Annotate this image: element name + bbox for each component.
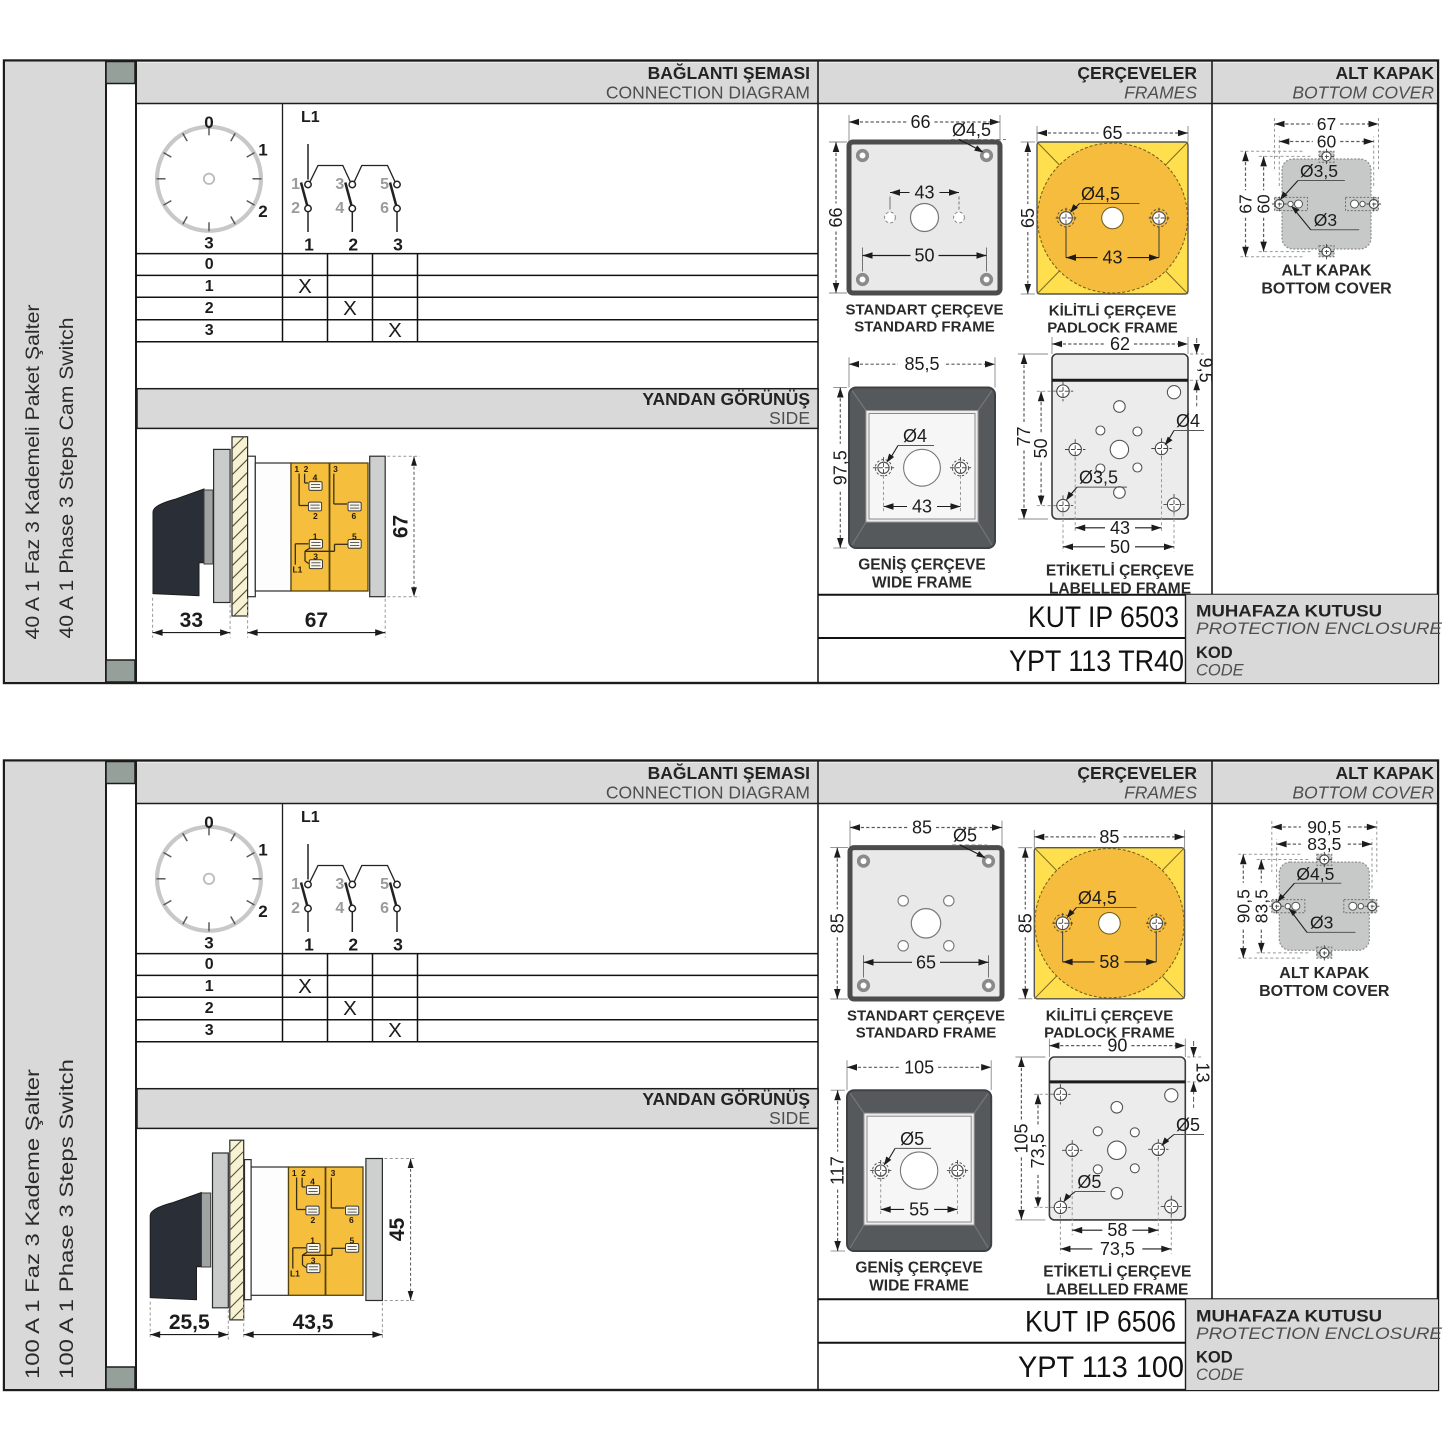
svg-text:SIDE: SIDE xyxy=(769,1108,810,1128)
svg-text:4: 4 xyxy=(335,200,344,217)
svg-text:2: 2 xyxy=(301,1168,306,1178)
svg-text:3: 3 xyxy=(313,552,318,562)
svg-text:85: 85 xyxy=(1015,913,1035,933)
svg-text:62: 62 xyxy=(1110,334,1130,354)
svg-text:40 A 1 Phase 3 Steps Cam Switc: 40 A 1 Phase 3 Steps Cam Switch xyxy=(56,318,78,639)
svg-text:13: 13 xyxy=(1193,1062,1213,1082)
svg-text:3: 3 xyxy=(335,876,344,893)
svg-text:85,5: 85,5 xyxy=(904,354,939,374)
svg-text:KOD: KOD xyxy=(1196,1349,1233,1367)
svg-text:1: 1 xyxy=(313,531,318,541)
svg-text:KİLİTLİ ÇERÇEVE: KİLİTLİ ÇERÇEVE xyxy=(1049,303,1177,320)
svg-text:2: 2 xyxy=(348,935,358,955)
svg-text:KUT IP 6506: KUT IP 6506 xyxy=(1025,1306,1176,1339)
svg-text:CODE: CODE xyxy=(1196,1366,1245,1384)
svg-text:Ø4: Ø4 xyxy=(903,426,927,446)
svg-text:3: 3 xyxy=(204,233,213,252)
svg-text:40 A 1 Faz 3 Kademeli Paket Şa: 40 A 1 Faz 3 Kademeli Paket Şalter xyxy=(22,304,44,640)
svg-text:67: 67 xyxy=(305,609,328,632)
svg-text:33: 33 xyxy=(180,609,203,632)
svg-text:105: 105 xyxy=(904,1057,934,1077)
svg-text:ALT KAPAK: ALT KAPAK xyxy=(1335,763,1434,783)
svg-text:90,5: 90,5 xyxy=(1233,889,1253,923)
svg-text:ETİKETLİ ÇERÇEVE: ETİKETLİ ÇERÇEVE xyxy=(1046,563,1194,580)
svg-text:STANDART ÇERÇEVE: STANDART ÇERÇEVE xyxy=(847,1008,1005,1025)
svg-text:X: X xyxy=(388,1019,402,1042)
svg-text:66: 66 xyxy=(826,207,846,227)
svg-text:4: 4 xyxy=(310,1177,315,1187)
svg-text:L1: L1 xyxy=(301,809,320,826)
svg-text:STANDART ÇERÇEVE: STANDART ÇERÇEVE xyxy=(845,302,1003,319)
svg-text:2: 2 xyxy=(291,200,300,217)
svg-text:4: 4 xyxy=(313,473,318,483)
svg-text:Ø3,5: Ø3,5 xyxy=(1300,161,1338,181)
svg-text:6: 6 xyxy=(380,900,389,917)
svg-text:1: 1 xyxy=(310,1235,315,1245)
svg-text:5: 5 xyxy=(350,1235,355,1245)
svg-text:BOTTOM COVER: BOTTOM COVER xyxy=(1292,83,1434,103)
svg-text:GENİŞ ÇERÇEVE: GENİŞ ÇERÇEVE xyxy=(855,1260,982,1277)
svg-text:43: 43 xyxy=(1110,518,1130,538)
svg-text:3: 3 xyxy=(205,1022,214,1039)
svg-text:73,5: 73,5 xyxy=(1100,1239,1135,1259)
svg-text:45: 45 xyxy=(386,1218,409,1242)
svg-text:X: X xyxy=(343,297,357,320)
svg-text:85: 85 xyxy=(827,913,847,933)
svg-text:85: 85 xyxy=(912,818,932,838)
svg-text:2: 2 xyxy=(291,900,300,917)
svg-text:FRAMES: FRAMES xyxy=(1124,783,1197,803)
svg-text:L1: L1 xyxy=(290,1269,300,1279)
svg-text:2: 2 xyxy=(258,202,267,221)
svg-text:Ø4,5: Ø4,5 xyxy=(1078,888,1117,908)
svg-text:43: 43 xyxy=(914,183,934,203)
svg-text:STANDARD FRAME: STANDARD FRAME xyxy=(856,1025,997,1042)
svg-text:1: 1 xyxy=(291,876,300,893)
svg-text:2: 2 xyxy=(304,464,309,474)
svg-text:58: 58 xyxy=(1099,952,1119,972)
svg-text:SIDE: SIDE xyxy=(769,408,810,428)
svg-text:ALT KAPAK: ALT KAPAK xyxy=(1281,263,1372,280)
svg-text:2: 2 xyxy=(313,511,318,521)
svg-text:3: 3 xyxy=(204,933,213,952)
svg-text:1: 1 xyxy=(294,464,299,474)
svg-text:Ø5: Ø5 xyxy=(900,1129,924,1149)
svg-text:55: 55 xyxy=(909,1199,929,1219)
svg-text:BAĞLANTI ŞEMASI: BAĞLANTI ŞEMASI xyxy=(648,62,810,83)
svg-text:5: 5 xyxy=(380,876,389,893)
svg-text:3: 3 xyxy=(335,176,344,193)
svg-text:1: 1 xyxy=(291,176,300,193)
svg-text:ALT KAPAK: ALT KAPAK xyxy=(1335,63,1434,83)
svg-text:2: 2 xyxy=(205,1000,214,1017)
svg-text:KOD: KOD xyxy=(1196,644,1233,662)
svg-text:Ø4: Ø4 xyxy=(1176,411,1200,431)
svg-text:YANDAN GÖRÜNÜŞ: YANDAN GÖRÜNÜŞ xyxy=(642,389,810,409)
svg-text:0: 0 xyxy=(205,956,214,973)
svg-text:1: 1 xyxy=(258,840,267,859)
svg-text:43: 43 xyxy=(1102,248,1122,268)
svg-text:CONNECTION DIAGRAM: CONNECTION DIAGRAM xyxy=(606,83,810,103)
svg-text:3: 3 xyxy=(393,235,403,255)
svg-text:25,5: 25,5 xyxy=(169,1311,210,1334)
svg-text:83,5: 83,5 xyxy=(1307,834,1341,854)
svg-text:X: X xyxy=(343,997,357,1020)
svg-text:60: 60 xyxy=(1254,194,1274,214)
svg-text:3: 3 xyxy=(311,1256,316,1266)
svg-text:MUHAFAZA KUTUSU: MUHAFAZA KUTUSU xyxy=(1196,603,1382,621)
svg-text:50: 50 xyxy=(914,246,934,266)
svg-text:PROTECTION ENCLOSURE: PROTECTION ENCLOSURE xyxy=(1196,620,1443,638)
svg-text:100 A 1 Faz 3 Kademe Şalter: 100 A 1 Faz 3 Kademe Şalter xyxy=(22,1068,44,1379)
svg-text:BOTTOM COVER: BOTTOM COVER xyxy=(1292,783,1434,803)
svg-text:CONNECTION DIAGRAM: CONNECTION DIAGRAM xyxy=(606,783,810,803)
svg-text:ÇERÇEVELER: ÇERÇEVELER xyxy=(1077,763,1197,783)
svg-text:WIDE FRAME: WIDE FRAME xyxy=(869,1278,969,1295)
svg-text:YANDAN GÖRÜNÜŞ: YANDAN GÖRÜNÜŞ xyxy=(642,1089,810,1109)
svg-text:KUT IP 6503: KUT IP 6503 xyxy=(1028,601,1179,634)
svg-text:Ø4,5: Ø4,5 xyxy=(1296,864,1334,884)
svg-text:90: 90 xyxy=(1107,1036,1127,1056)
svg-text:MUHAFAZA KUTUSU: MUHAFAZA KUTUSU xyxy=(1196,1307,1382,1325)
svg-text:GENİŞ ÇERÇEVE: GENİŞ ÇERÇEVE xyxy=(858,557,985,574)
svg-text:1: 1 xyxy=(205,978,214,995)
svg-text:L1: L1 xyxy=(292,565,302,575)
svg-text:0: 0 xyxy=(205,256,214,273)
svg-text:65: 65 xyxy=(1018,208,1038,228)
svg-text:73,5: 73,5 xyxy=(1028,1133,1048,1168)
svg-text:CODE: CODE xyxy=(1196,662,1245,680)
svg-text:2: 2 xyxy=(348,235,358,255)
svg-text:PROTECTION ENCLOSURE: PROTECTION ENCLOSURE xyxy=(1196,1325,1443,1343)
svg-text:YPT 113 TR40: YPT 113 TR40 xyxy=(1009,645,1184,678)
svg-text:67: 67 xyxy=(390,515,413,538)
svg-text:1: 1 xyxy=(292,1168,297,1178)
svg-text:BOTTOM COVER: BOTTOM COVER xyxy=(1261,281,1392,298)
svg-text:X: X xyxy=(298,275,312,298)
svg-text:2: 2 xyxy=(205,300,214,317)
svg-text:WIDE FRAME: WIDE FRAME xyxy=(872,575,972,592)
svg-text:STANDARD FRAME: STANDARD FRAME xyxy=(854,319,995,336)
svg-text:Ø5: Ø5 xyxy=(953,826,977,846)
svg-text:ÇERÇEVELER: ÇERÇEVELER xyxy=(1077,63,1197,83)
svg-text:3: 3 xyxy=(333,464,338,474)
svg-text:1: 1 xyxy=(205,278,214,295)
svg-text:9,5: 9,5 xyxy=(1196,358,1216,383)
svg-text:1: 1 xyxy=(304,235,314,255)
svg-text:6: 6 xyxy=(380,200,389,217)
svg-text:L1: L1 xyxy=(301,109,320,126)
svg-text:50: 50 xyxy=(1031,438,1051,458)
svg-text:FRAMES: FRAMES xyxy=(1124,83,1197,103)
svg-text:2: 2 xyxy=(311,1215,316,1225)
svg-text:LABELLED FRAME: LABELLED FRAME xyxy=(1046,1281,1188,1298)
svg-text:3: 3 xyxy=(331,1168,336,1178)
svg-text:83,5: 83,5 xyxy=(1251,889,1271,923)
svg-text:66: 66 xyxy=(910,112,930,132)
svg-text:4: 4 xyxy=(335,900,344,917)
svg-text:100 A 1 Phase 3 Steps Switch: 100 A 1 Phase 3 Steps Switch xyxy=(56,1059,78,1379)
svg-text:6: 6 xyxy=(352,511,357,521)
svg-text:65: 65 xyxy=(1102,123,1122,143)
svg-text:1: 1 xyxy=(258,140,267,159)
svg-text:5: 5 xyxy=(380,176,389,193)
svg-text:97,5: 97,5 xyxy=(830,450,850,485)
svg-text:85: 85 xyxy=(1099,827,1119,847)
svg-text:ETİKETLİ ÇERÇEVE: ETİKETLİ ÇERÇEVE xyxy=(1043,1263,1191,1280)
svg-text:Ø5: Ø5 xyxy=(1077,1172,1101,1192)
svg-text:0: 0 xyxy=(204,813,213,832)
svg-text:Ø3,5: Ø3,5 xyxy=(1079,468,1118,488)
svg-text:1: 1 xyxy=(304,935,314,955)
svg-text:3: 3 xyxy=(205,322,214,339)
svg-text:KİLİTLİ ÇERÇEVE: KİLİTLİ ÇERÇEVE xyxy=(1046,1007,1174,1024)
svg-text:Ø4,5: Ø4,5 xyxy=(952,120,991,140)
svg-text:50: 50 xyxy=(1110,537,1130,557)
svg-text:Ø3: Ø3 xyxy=(1310,912,1333,932)
svg-text:X: X xyxy=(388,319,402,342)
svg-text:Ø5: Ø5 xyxy=(1176,1115,1200,1135)
svg-text:Ø3: Ø3 xyxy=(1314,210,1337,230)
svg-text:60: 60 xyxy=(1317,132,1337,152)
svg-text:3: 3 xyxy=(393,935,403,955)
svg-text:0: 0 xyxy=(204,113,213,132)
svg-text:BOTTOM COVER: BOTTOM COVER xyxy=(1259,983,1390,1000)
svg-text:65: 65 xyxy=(916,952,936,972)
svg-text:X: X xyxy=(298,975,312,998)
svg-text:67: 67 xyxy=(1236,194,1256,213)
svg-text:43: 43 xyxy=(912,497,932,517)
svg-text:58: 58 xyxy=(1107,1220,1127,1240)
svg-text:43,5: 43,5 xyxy=(293,1311,334,1334)
svg-text:Ø4,5: Ø4,5 xyxy=(1081,184,1120,204)
svg-text:ALT KAPAK: ALT KAPAK xyxy=(1279,965,1370,982)
svg-text:2: 2 xyxy=(258,902,267,921)
svg-text:BAĞLANTI ŞEMASI: BAĞLANTI ŞEMASI xyxy=(648,762,810,783)
svg-text:117: 117 xyxy=(828,1156,848,1185)
svg-text:YPT 113 100: YPT 113 100 xyxy=(1018,1351,1184,1384)
svg-text:6: 6 xyxy=(349,1215,354,1225)
svg-text:5: 5 xyxy=(352,531,357,541)
